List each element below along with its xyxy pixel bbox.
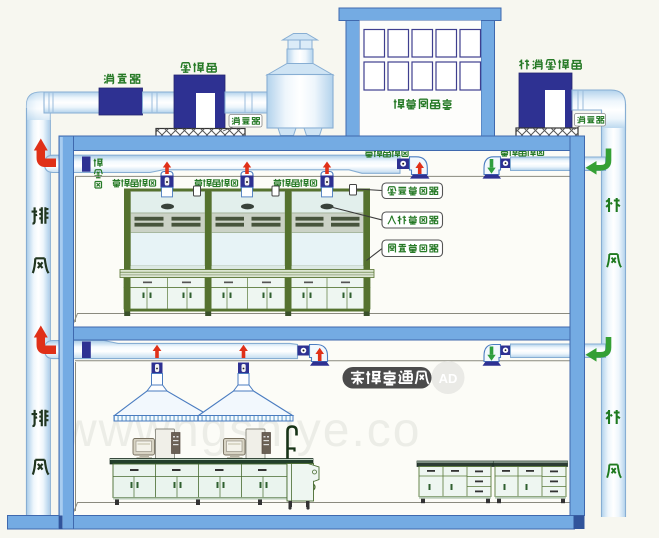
svg-text:AD: AD: [439, 371, 458, 386]
